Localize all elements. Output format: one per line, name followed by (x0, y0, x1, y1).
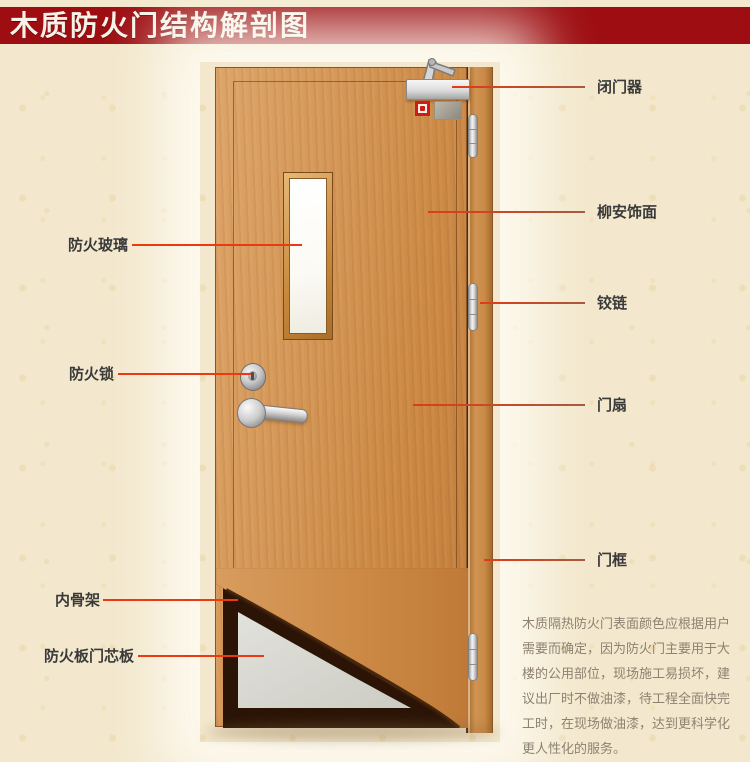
red-label-sticker (415, 101, 430, 116)
fire-lock-leader-line (118, 373, 251, 375)
description-line: 议出厂时不做油漆，待工程全面快完 (522, 687, 722, 712)
door-handle-rosette (237, 398, 266, 428)
hinge-label: 铰链 (597, 294, 627, 312)
fire-lock-label: 防火锁 (38, 365, 114, 383)
description-line: 木质隔热防火门表面颜色应根据用户 (522, 612, 722, 637)
core-board-leader-line (138, 655, 264, 657)
door-closer-label: 闭门器 (597, 78, 642, 96)
hinge-bottom (468, 633, 478, 681)
inner-frame-leader-line (103, 599, 238, 601)
door-cutaway (216, 568, 468, 728)
sticker-dot (420, 106, 425, 111)
description-line: 楼的公用部位，现场施工易损坏，建 (522, 662, 722, 687)
gray-info-patch (434, 101, 462, 120)
door-frame-leader-line (484, 559, 585, 561)
core-board-label: 防火板门芯板 (26, 647, 134, 665)
door-frame-label: 门框 (597, 551, 627, 569)
fire-glass-window (283, 172, 333, 340)
fire-lock-cylinder (240, 363, 266, 391)
description-line: 工时，在现场做油漆，达到更科学化 (522, 712, 722, 737)
header-banner: 木质防火门结构解剖图 (0, 7, 750, 44)
door-floor-shadow (205, 724, 500, 740)
fire-glass-label: 防火玻璃 (38, 236, 128, 254)
inner-frame-label: 内骨架 (28, 591, 100, 609)
description-line: 需要而确定，因为防火门主要用于大 (522, 637, 722, 662)
door-closer-leader-line (452, 86, 585, 88)
lock-keyhole (251, 372, 254, 380)
hinge-top (468, 114, 478, 158)
veneer-label: 柳安饰面 (597, 203, 657, 221)
hinge-middle (468, 283, 478, 331)
veneer-leader-line (428, 211, 585, 213)
description-paragraph: 木质隔热防火门表面颜色应根据用户 需要而确定，因为防火门主要用于大 楼的公用部位… (522, 612, 722, 762)
fire-glass-leader-line (132, 244, 302, 246)
door-leaf-label: 门扇 (597, 396, 627, 414)
description-line: 更人性化的服务。 (522, 737, 722, 762)
door-leaf (215, 67, 467, 727)
door-closer-body (406, 79, 470, 100)
page-title: 木质防火门结构解剖图 (0, 12, 310, 40)
door-leaf-leader-line (413, 404, 585, 406)
hinge-leader-line (480, 302, 585, 304)
glass-pane (289, 178, 327, 334)
